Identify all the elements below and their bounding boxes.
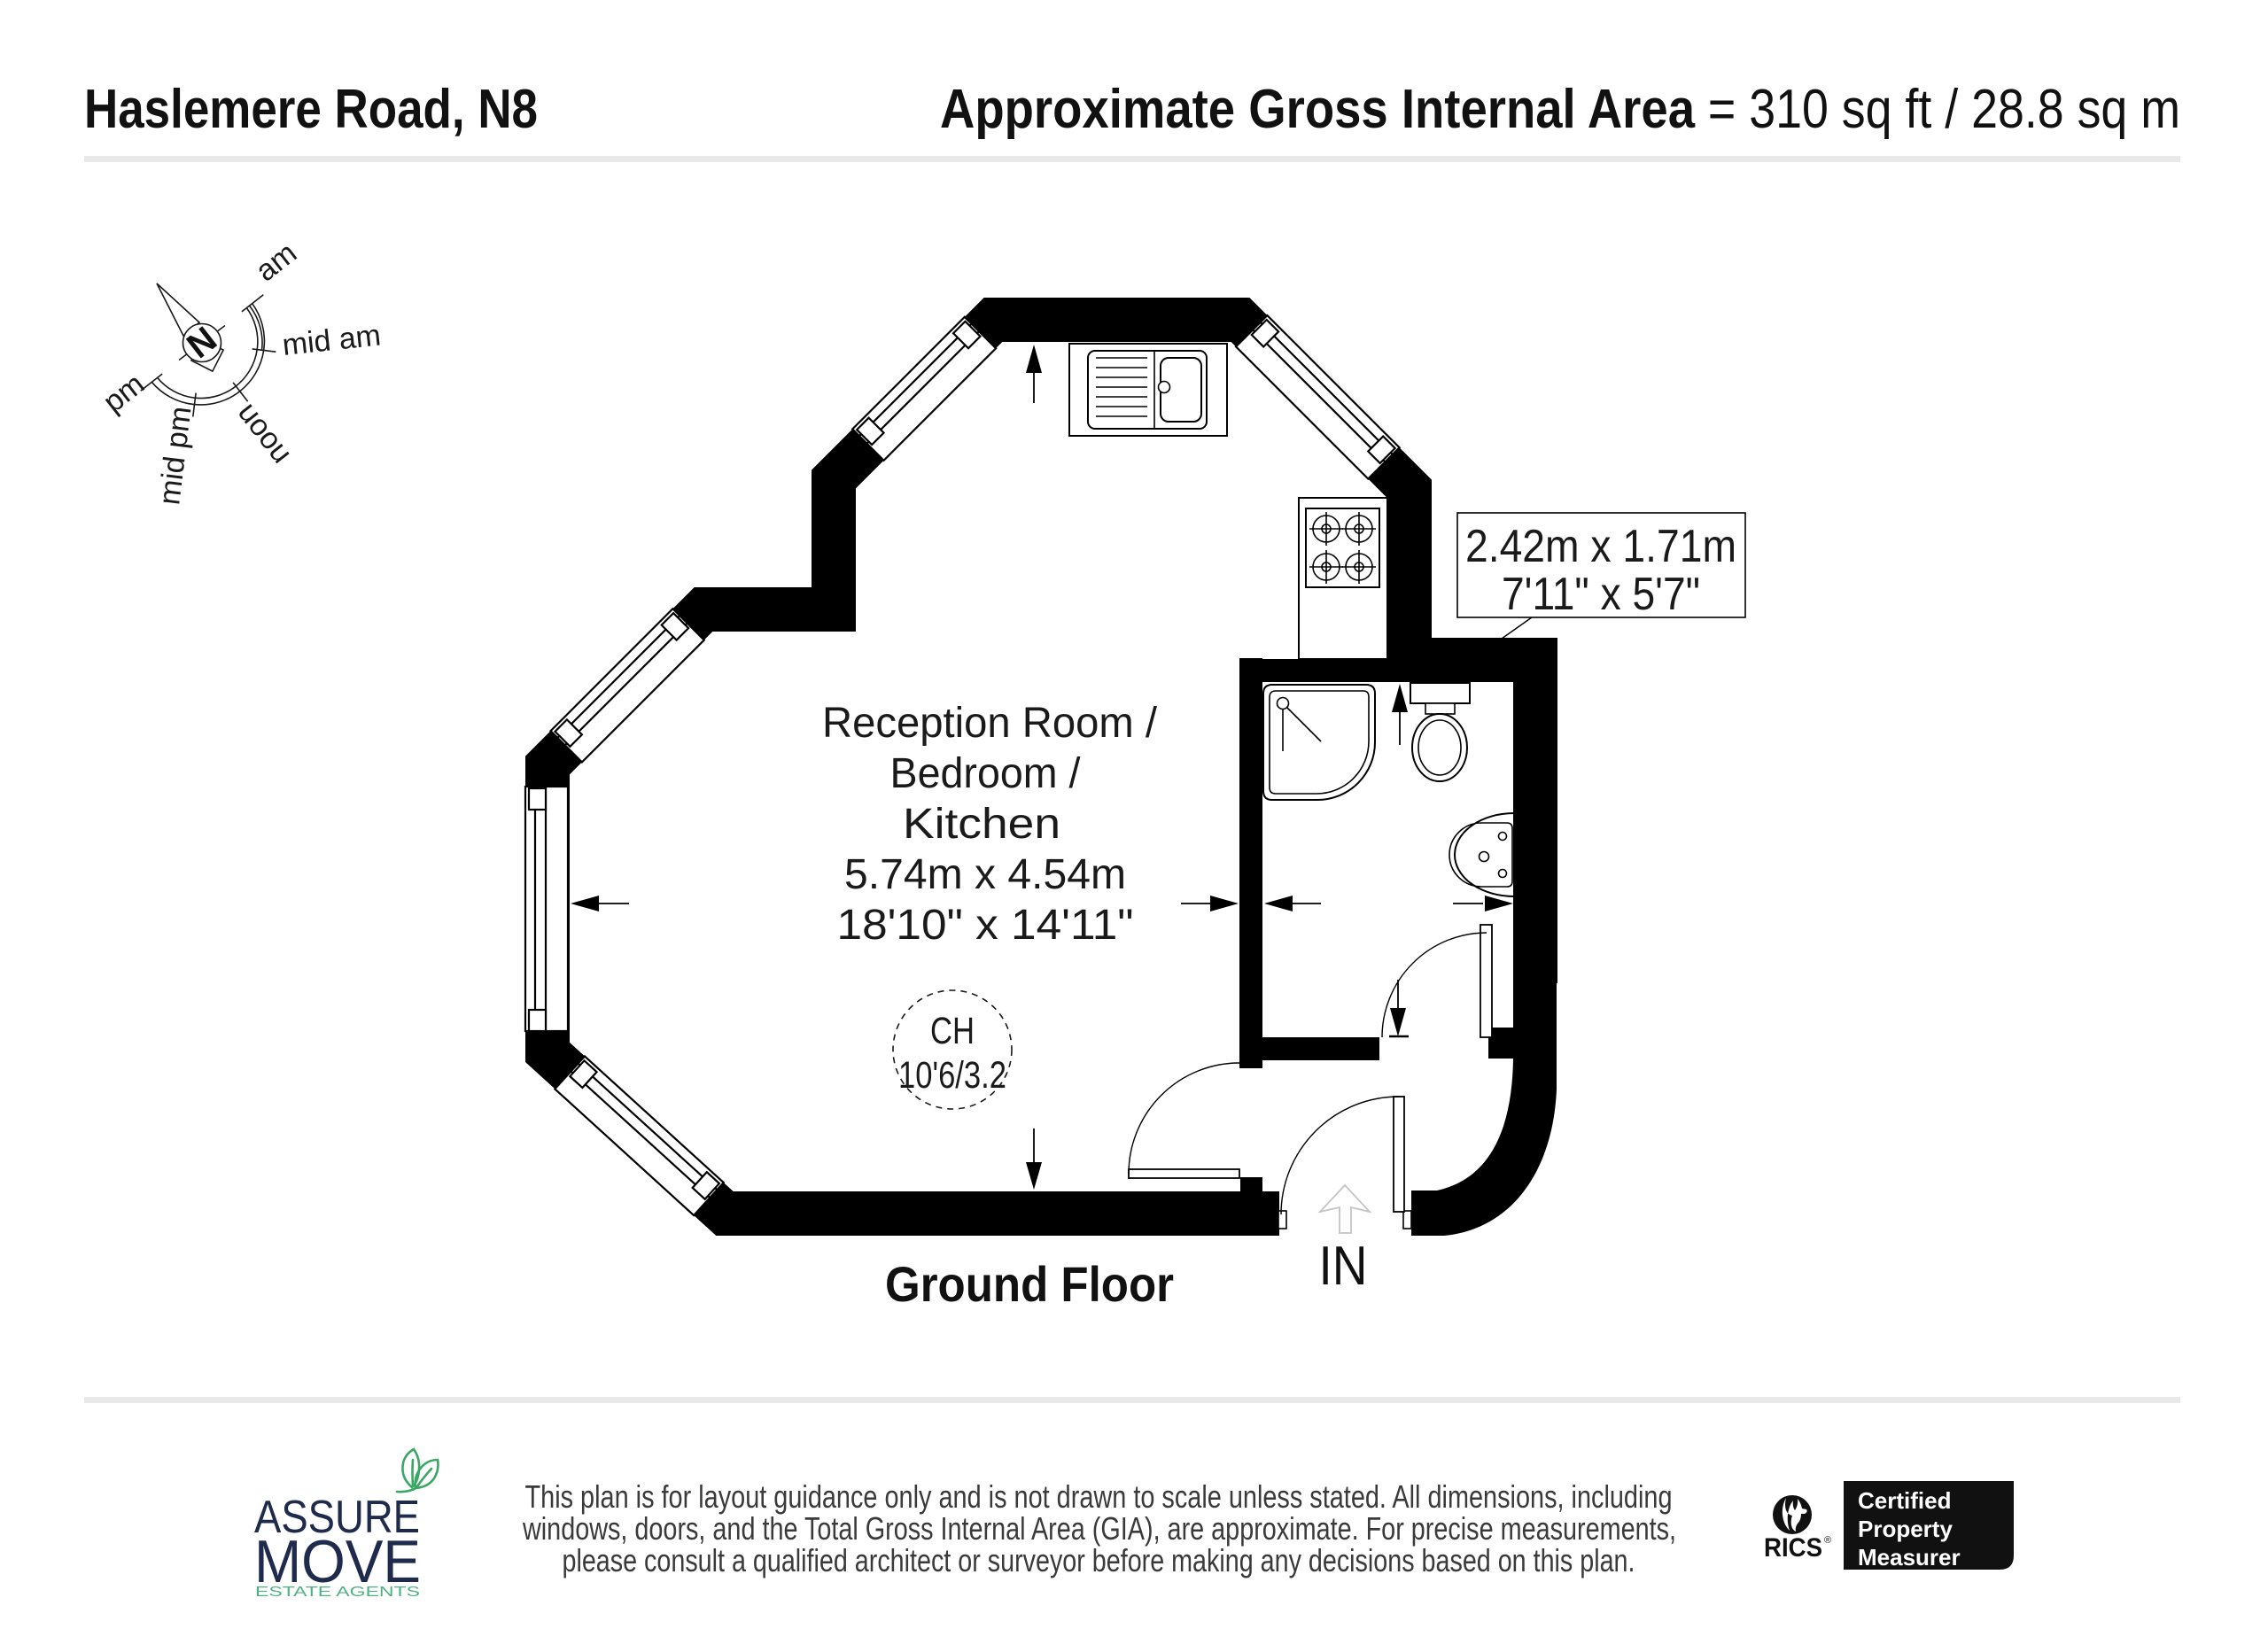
- svg-text:Bedroom /: Bedroom /: [890, 750, 1082, 797]
- svg-text:Property: Property: [1858, 1516, 1953, 1542]
- svg-text:ESTATE AGENTS: ESTATE AGENTS: [255, 1585, 420, 1600]
- svg-text:IN: IN: [1319, 1236, 1368, 1297]
- svg-text:RICS: RICS: [1764, 1533, 1822, 1563]
- svg-text:please consult a qualified arc: please consult a qualified architect or …: [563, 1542, 1635, 1578]
- svg-text:5.74m x 4.54m: 5.74m x 4.54m: [844, 851, 1126, 898]
- svg-text:Approximate Gross Internal Are: Approximate Gross Internal Area = 310 sq…: [940, 79, 2180, 140]
- svg-text:®: ®: [1824, 1535, 1831, 1546]
- svg-text:Measurer: Measurer: [1858, 1544, 1961, 1571]
- svg-text:2.42m x 1.71m: 2.42m x 1.71m: [1465, 521, 1736, 572]
- svg-text:7'11" x 5'7": 7'11" x 5'7": [1502, 569, 1700, 620]
- svg-text:Haslemere Road, N8: Haslemere Road, N8: [84, 79, 538, 140]
- svg-text:10'6/3.2: 10'6/3.2: [898, 1054, 1006, 1097]
- svg-text:CH: CH: [930, 1010, 975, 1052]
- svg-text:Reception Room /: Reception Room /: [822, 700, 1158, 747]
- svg-text:Certified: Certified: [1858, 1487, 1951, 1514]
- svg-text:This plan is for layout guidan: This plan is for layout guidance only an…: [525, 1478, 1673, 1515]
- svg-text:Ground Floor: Ground Floor: [885, 1256, 1174, 1312]
- svg-text:windows, doors, and the Total: windows, doors, and the Total Gross Inte…: [522, 1510, 1676, 1547]
- svg-text:18'10" x 14'11": 18'10" x 14'11": [837, 902, 1134, 949]
- svg-text:Kitchen: Kitchen: [903, 801, 1060, 848]
